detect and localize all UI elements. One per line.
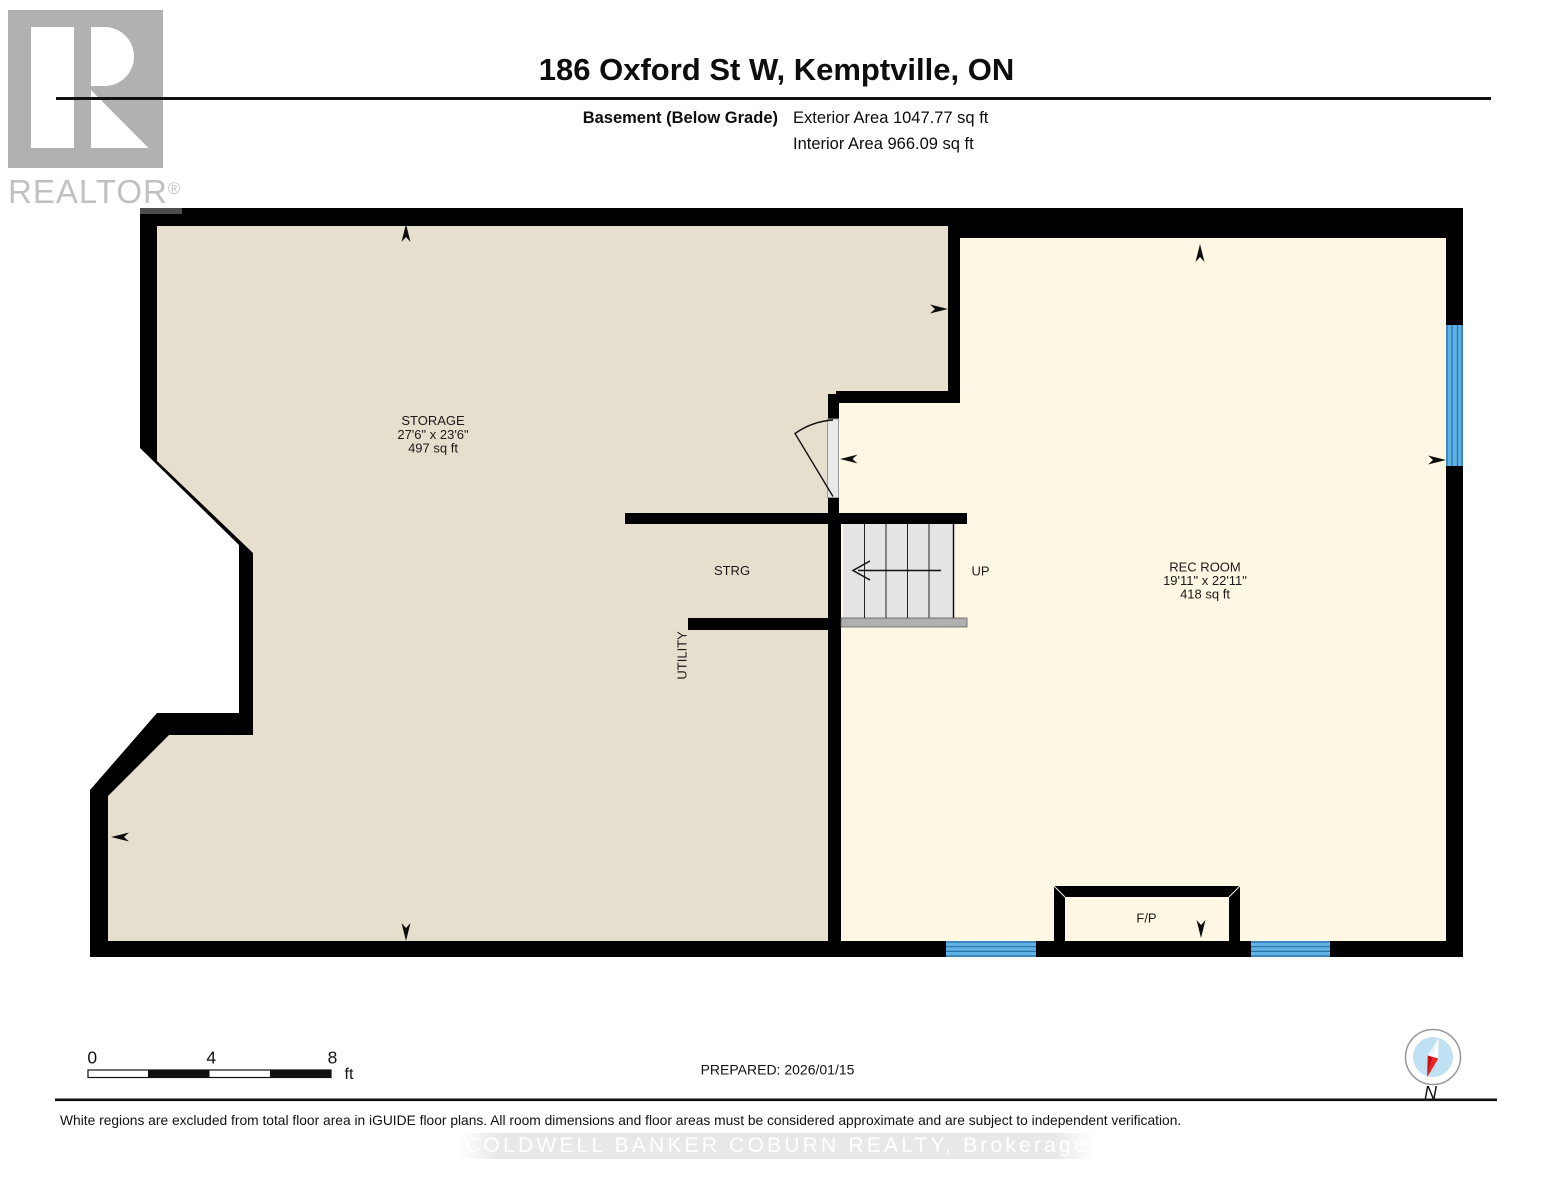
svg-text:F/P: F/P bbox=[1136, 911, 1156, 926]
svg-text:8: 8 bbox=[328, 1047, 338, 1067]
svg-text:PREPARED: 2026/01/15: PREPARED: 2026/01/15 bbox=[701, 1062, 855, 1078]
svg-text:418 sq ft: 418 sq ft bbox=[1180, 587, 1230, 602]
svg-text:0: 0 bbox=[87, 1047, 97, 1067]
svg-text:497 sq ft: 497 sq ft bbox=[408, 441, 458, 456]
svg-text:UP: UP bbox=[971, 564, 989, 579]
svg-text:STRG: STRG bbox=[714, 563, 750, 578]
svg-text:White regions are excluded fro: White regions are excluded from total fl… bbox=[60, 1113, 1181, 1128]
svg-text:ft: ft bbox=[345, 1066, 354, 1083]
svg-text:STORAGE: STORAGE bbox=[401, 413, 465, 428]
svg-text:UTILITY: UTILITY bbox=[675, 631, 690, 680]
svg-text:4: 4 bbox=[206, 1047, 216, 1067]
